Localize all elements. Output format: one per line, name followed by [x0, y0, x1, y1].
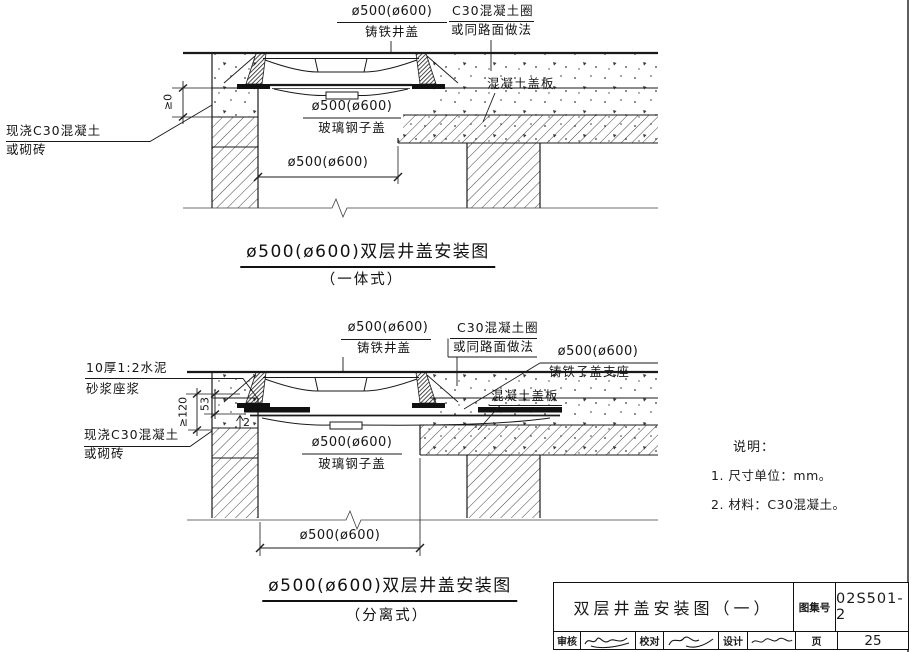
title-block-row-main: 双层井盖安装图（一） 图集号 02S501-2 — [554, 583, 908, 631]
d2-depth-dimension: ≥120 — [178, 397, 191, 427]
d1-cast-concrete-label-line2: 或砌砖 — [6, 143, 47, 157]
d2-concrete-ring-label-line2: 或同路面做法 — [453, 340, 534, 354]
notes-block: 说明： 1. 尺寸单位：mm。 2. 材料：C30混凝土。 — [711, 436, 901, 513]
d1-subtitle: （一体式） — [321, 268, 404, 289]
designer-label: 设计 — [719, 632, 748, 649]
d2-seat-name-label: 铸铁子盖支座 — [549, 365, 630, 379]
d2-opening-dimension: ø500(ø600) — [300, 529, 381, 544]
d1-materials — [212, 53, 658, 208]
d2-cast-concrete-label-line1: 现浇C30混凝土 — [84, 428, 179, 442]
designer-signature — [748, 632, 796, 649]
d1-concrete-ring-label-line2: 或同路面做法 — [451, 23, 532, 37]
d2-seat-diameter-label: ø500(ø600) — [558, 345, 639, 360]
d2-gap-dimension: 2 — [243, 417, 250, 430]
title-block-drawing-title: 双层井盖安装图（一） — [554, 583, 794, 631]
checker-label: 校对 — [636, 632, 664, 649]
reviewer-signature — [581, 632, 636, 649]
d2-mortar-label-line2: 砂浆座浆 — [86, 382, 140, 396]
d2-cover-slab-label: 混凝土盖板 — [491, 389, 559, 403]
d2-cover-diameter-label: ø500(ø600) — [348, 321, 429, 336]
d2-subcover-name-label: 玻璃钢子盖 — [318, 457, 386, 471]
checker-signature-scribble — [666, 633, 716, 649]
d1-opening-dimension: ø500(ø600) — [288, 156, 369, 171]
d2-title: ø500(ø600)双层井盖安装图 — [262, 571, 517, 602]
d1-cover-slab-label: 混凝土盖板 — [487, 77, 555, 91]
d2-cast-concrete-label-line2: 或砌砖 — [84, 447, 125, 461]
atlas-number-value: 02S501-2 — [836, 583, 908, 631]
d1-cast-concrete-label-line1: 现浇C30混凝土 — [6, 124, 101, 138]
d1-cover-name-label: 铸铁井盖 — [365, 25, 419, 39]
page-label: 页 — [796, 632, 838, 649]
reviewer-signature-scribble — [583, 633, 633, 649]
d1-concrete-ring-label-line1: C30混凝土圈 — [452, 4, 534, 18]
d2-mortar-label-line1: 10厚1:2水泥 — [86, 361, 168, 375]
d2-seat-dimension: 53 — [200, 397, 213, 411]
d2-cover-name-label: 铸铁井盖 — [357, 341, 411, 355]
checker-signature — [664, 632, 719, 649]
d2-concrete-ring-label-line1: C30混凝土圈 — [457, 321, 539, 335]
page-number: 25 — [838, 632, 908, 649]
d2-subtitle: （分离式） — [346, 604, 429, 625]
note-item-1: 1. 尺寸单位：mm。 — [711, 465, 901, 484]
reviewer-label: 审核 — [554, 632, 581, 649]
title-block-row-signatures: 审核 校对 设计 页 25 — [554, 631, 908, 649]
note-item-2: 2. 材料：C30混凝土。 — [711, 494, 901, 513]
d1-cover-diameter-label: ø500(ø600) — [352, 5, 433, 20]
d1-subcover-diameter-label: ø500(ø600) — [312, 100, 393, 115]
atlas-number-label: 图集号 — [794, 583, 836, 631]
title-block: 双层井盖安装图（一） 图集号 02S501-2 审核 校对 设计 — [553, 582, 909, 650]
d2-subcover-diameter-label: ø500(ø600) — [312, 436, 393, 451]
designer-signature-scribble — [750, 633, 794, 649]
d1-collar-height-dimension: ≥0 — [163, 94, 176, 110]
d1-subcover-name-label: 玻璃钢子盖 — [318, 121, 386, 135]
d1-title: ø500(ø600)双层井盖安装图 — [240, 237, 495, 268]
atlas-page: ø500(ø600) 铸铁井盖 C30混凝土圈 或同路面做法 混凝土盖板 现浇C… — [0, 0, 915, 652]
notes-heading: 说明： — [733, 436, 901, 455]
d2-materials — [212, 372, 658, 518]
